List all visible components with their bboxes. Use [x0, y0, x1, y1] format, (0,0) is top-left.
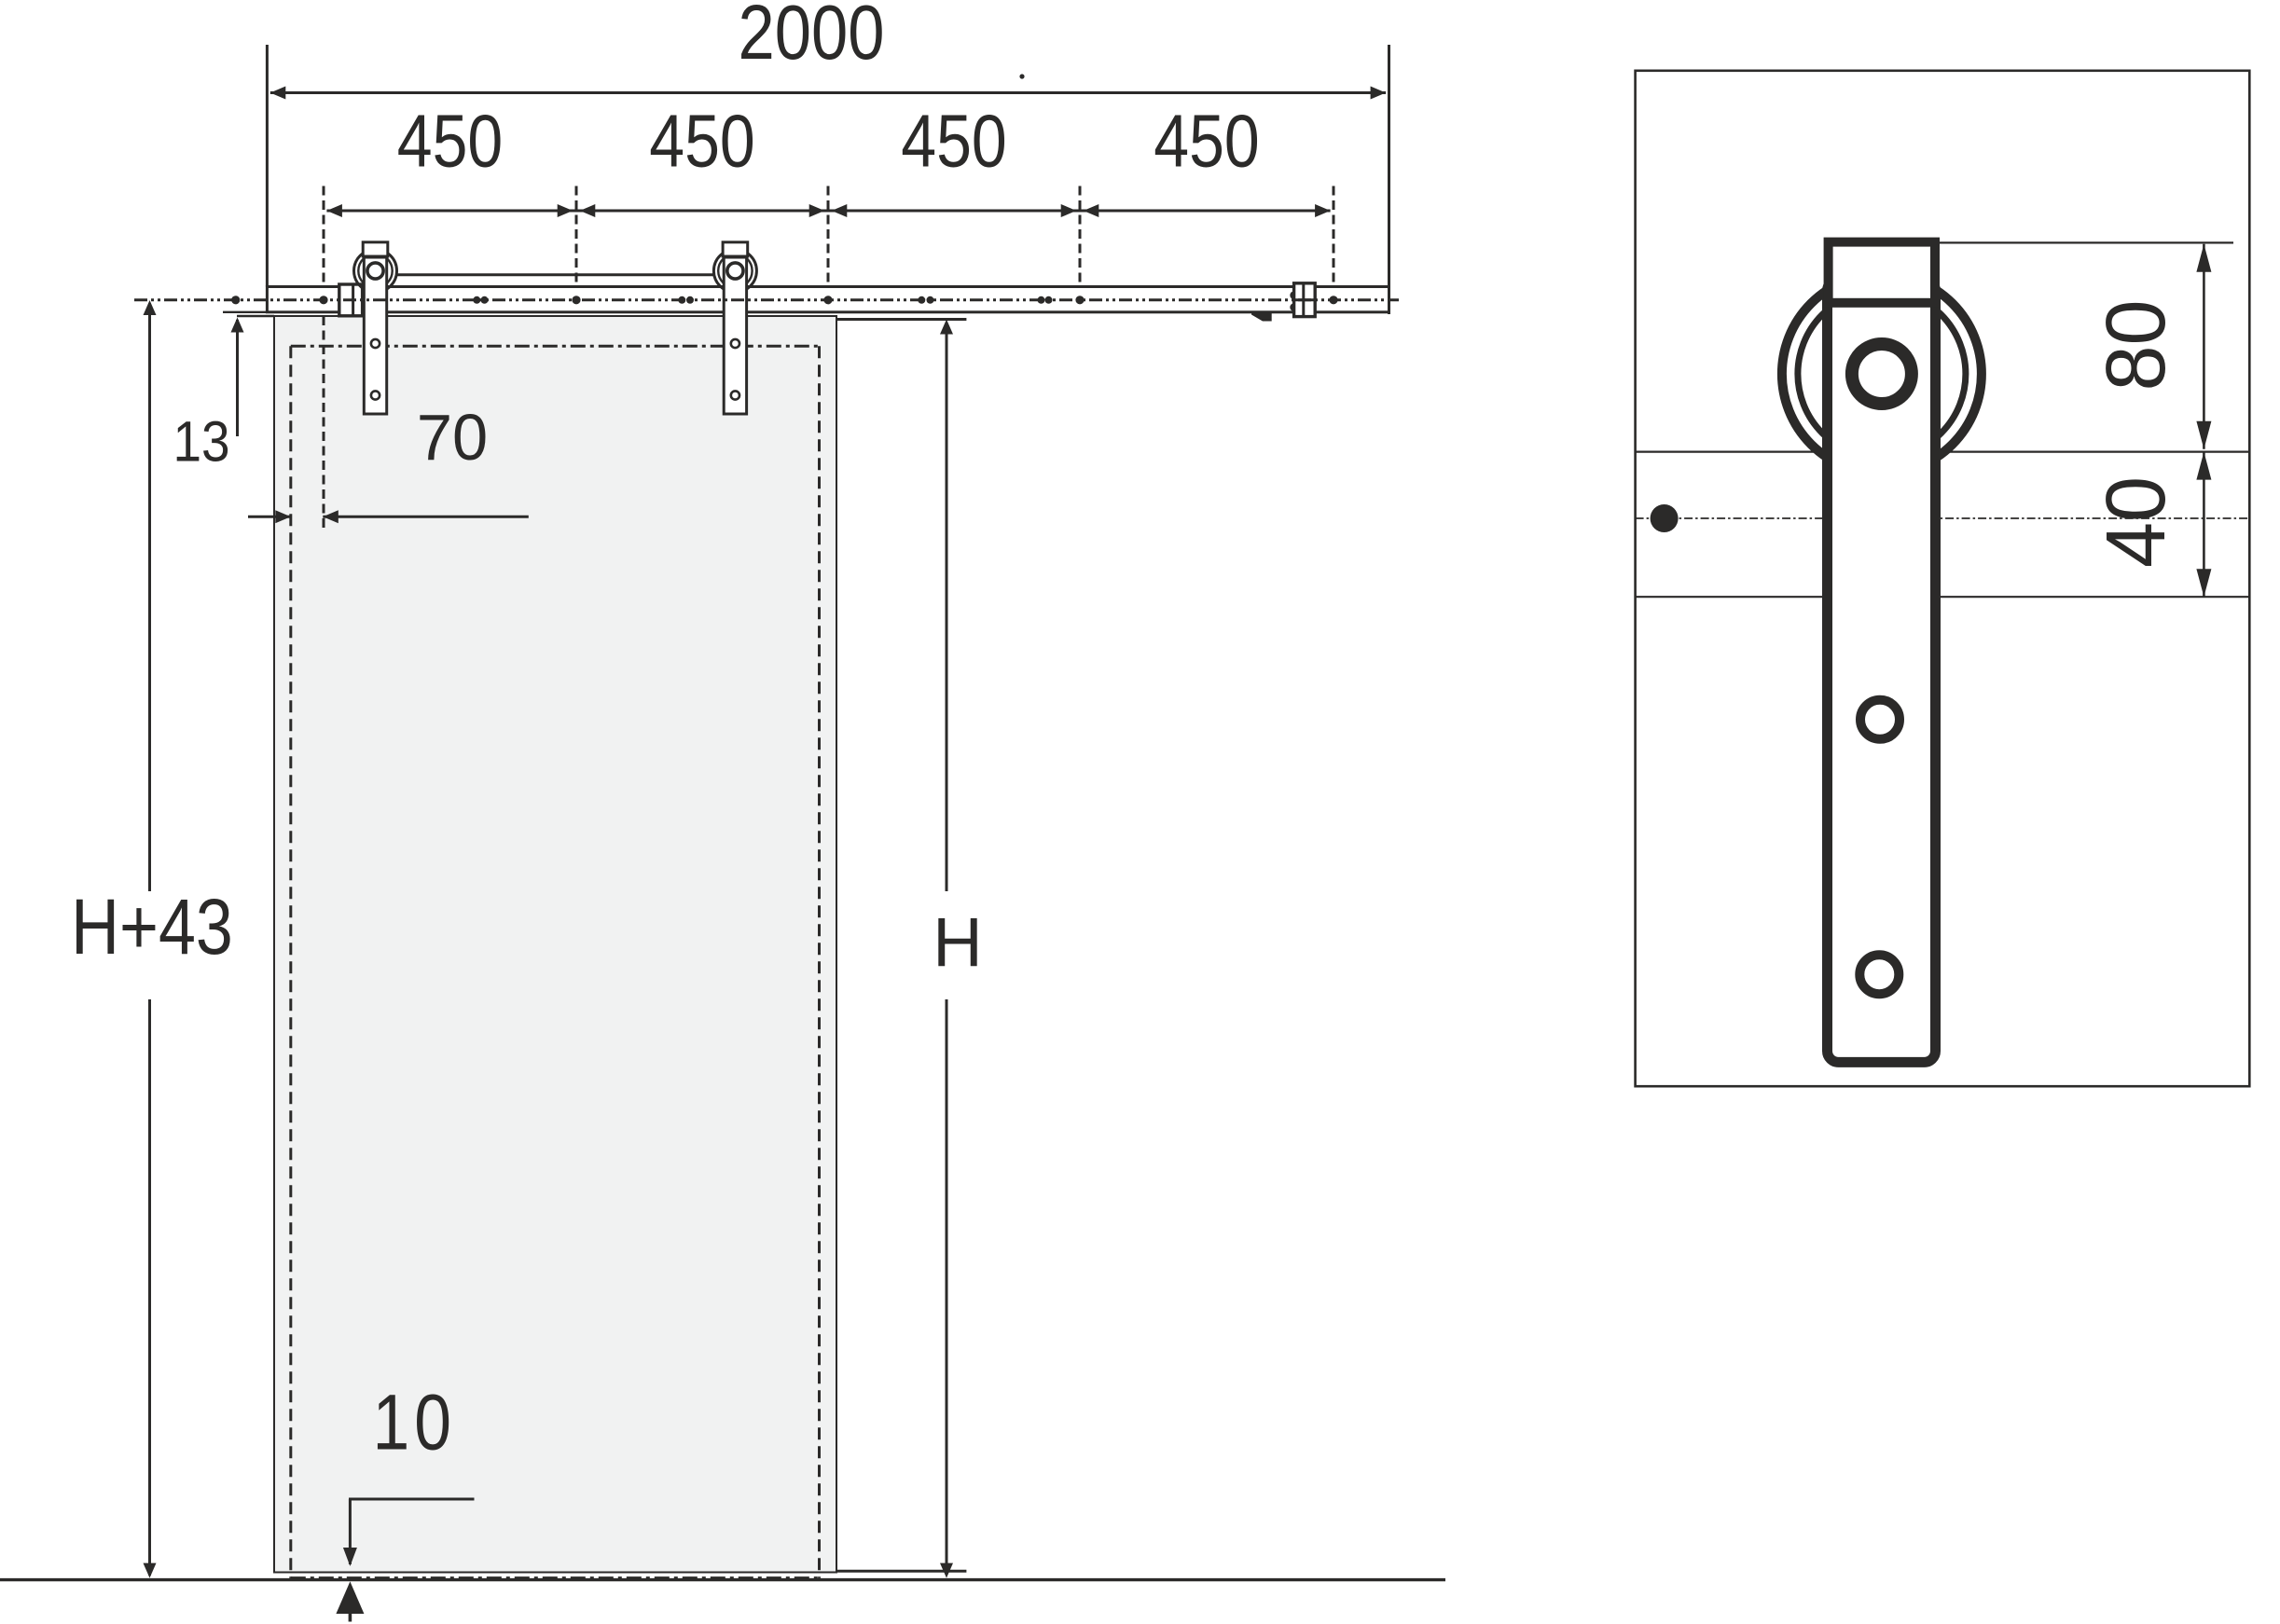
svg-text:H+43: H+43	[71, 883, 233, 971]
svg-text:40: 40	[2088, 476, 2182, 568]
svg-text:80: 80	[2088, 299, 2182, 391]
svg-text:450: 450	[901, 99, 1006, 182]
svg-text:70: 70	[417, 400, 488, 474]
svg-text:450: 450	[1154, 99, 1259, 182]
svg-text:2000: 2000	[739, 0, 885, 76]
svg-text:H: H	[933, 903, 982, 981]
svg-text:450: 450	[397, 99, 503, 182]
svg-text:10: 10	[372, 1378, 456, 1466]
svg-text:450: 450	[649, 99, 754, 182]
svg-text:13: 13	[173, 410, 229, 474]
